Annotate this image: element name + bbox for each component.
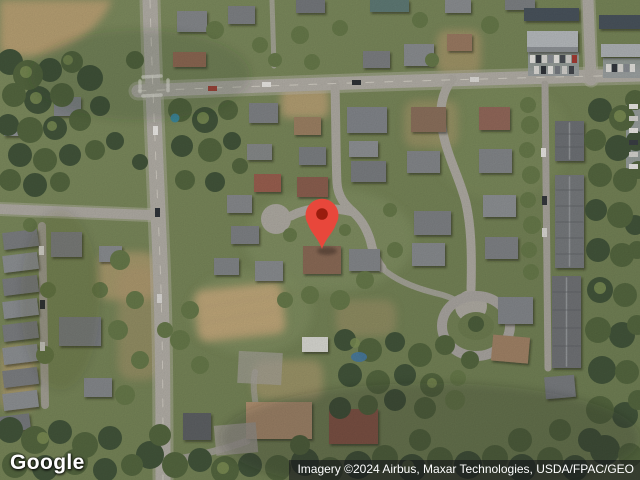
imagery-attribution: Imagery ©2024 Airbus, Maxar Technologies… — [289, 460, 640, 480]
satellite-imagery — [0, 0, 640, 480]
google-logo[interactable]: Google — [10, 451, 85, 475]
imagery-attribution-text: Imagery ©2024 Airbus, Maxar Technologies… — [297, 462, 634, 476]
pin-shadow — [317, 247, 337, 255]
pin-dot — [316, 208, 328, 220]
static-map-image[interactable]: Google Imagery ©2024 Airbus, Maxar Techn… — [0, 0, 640, 480]
